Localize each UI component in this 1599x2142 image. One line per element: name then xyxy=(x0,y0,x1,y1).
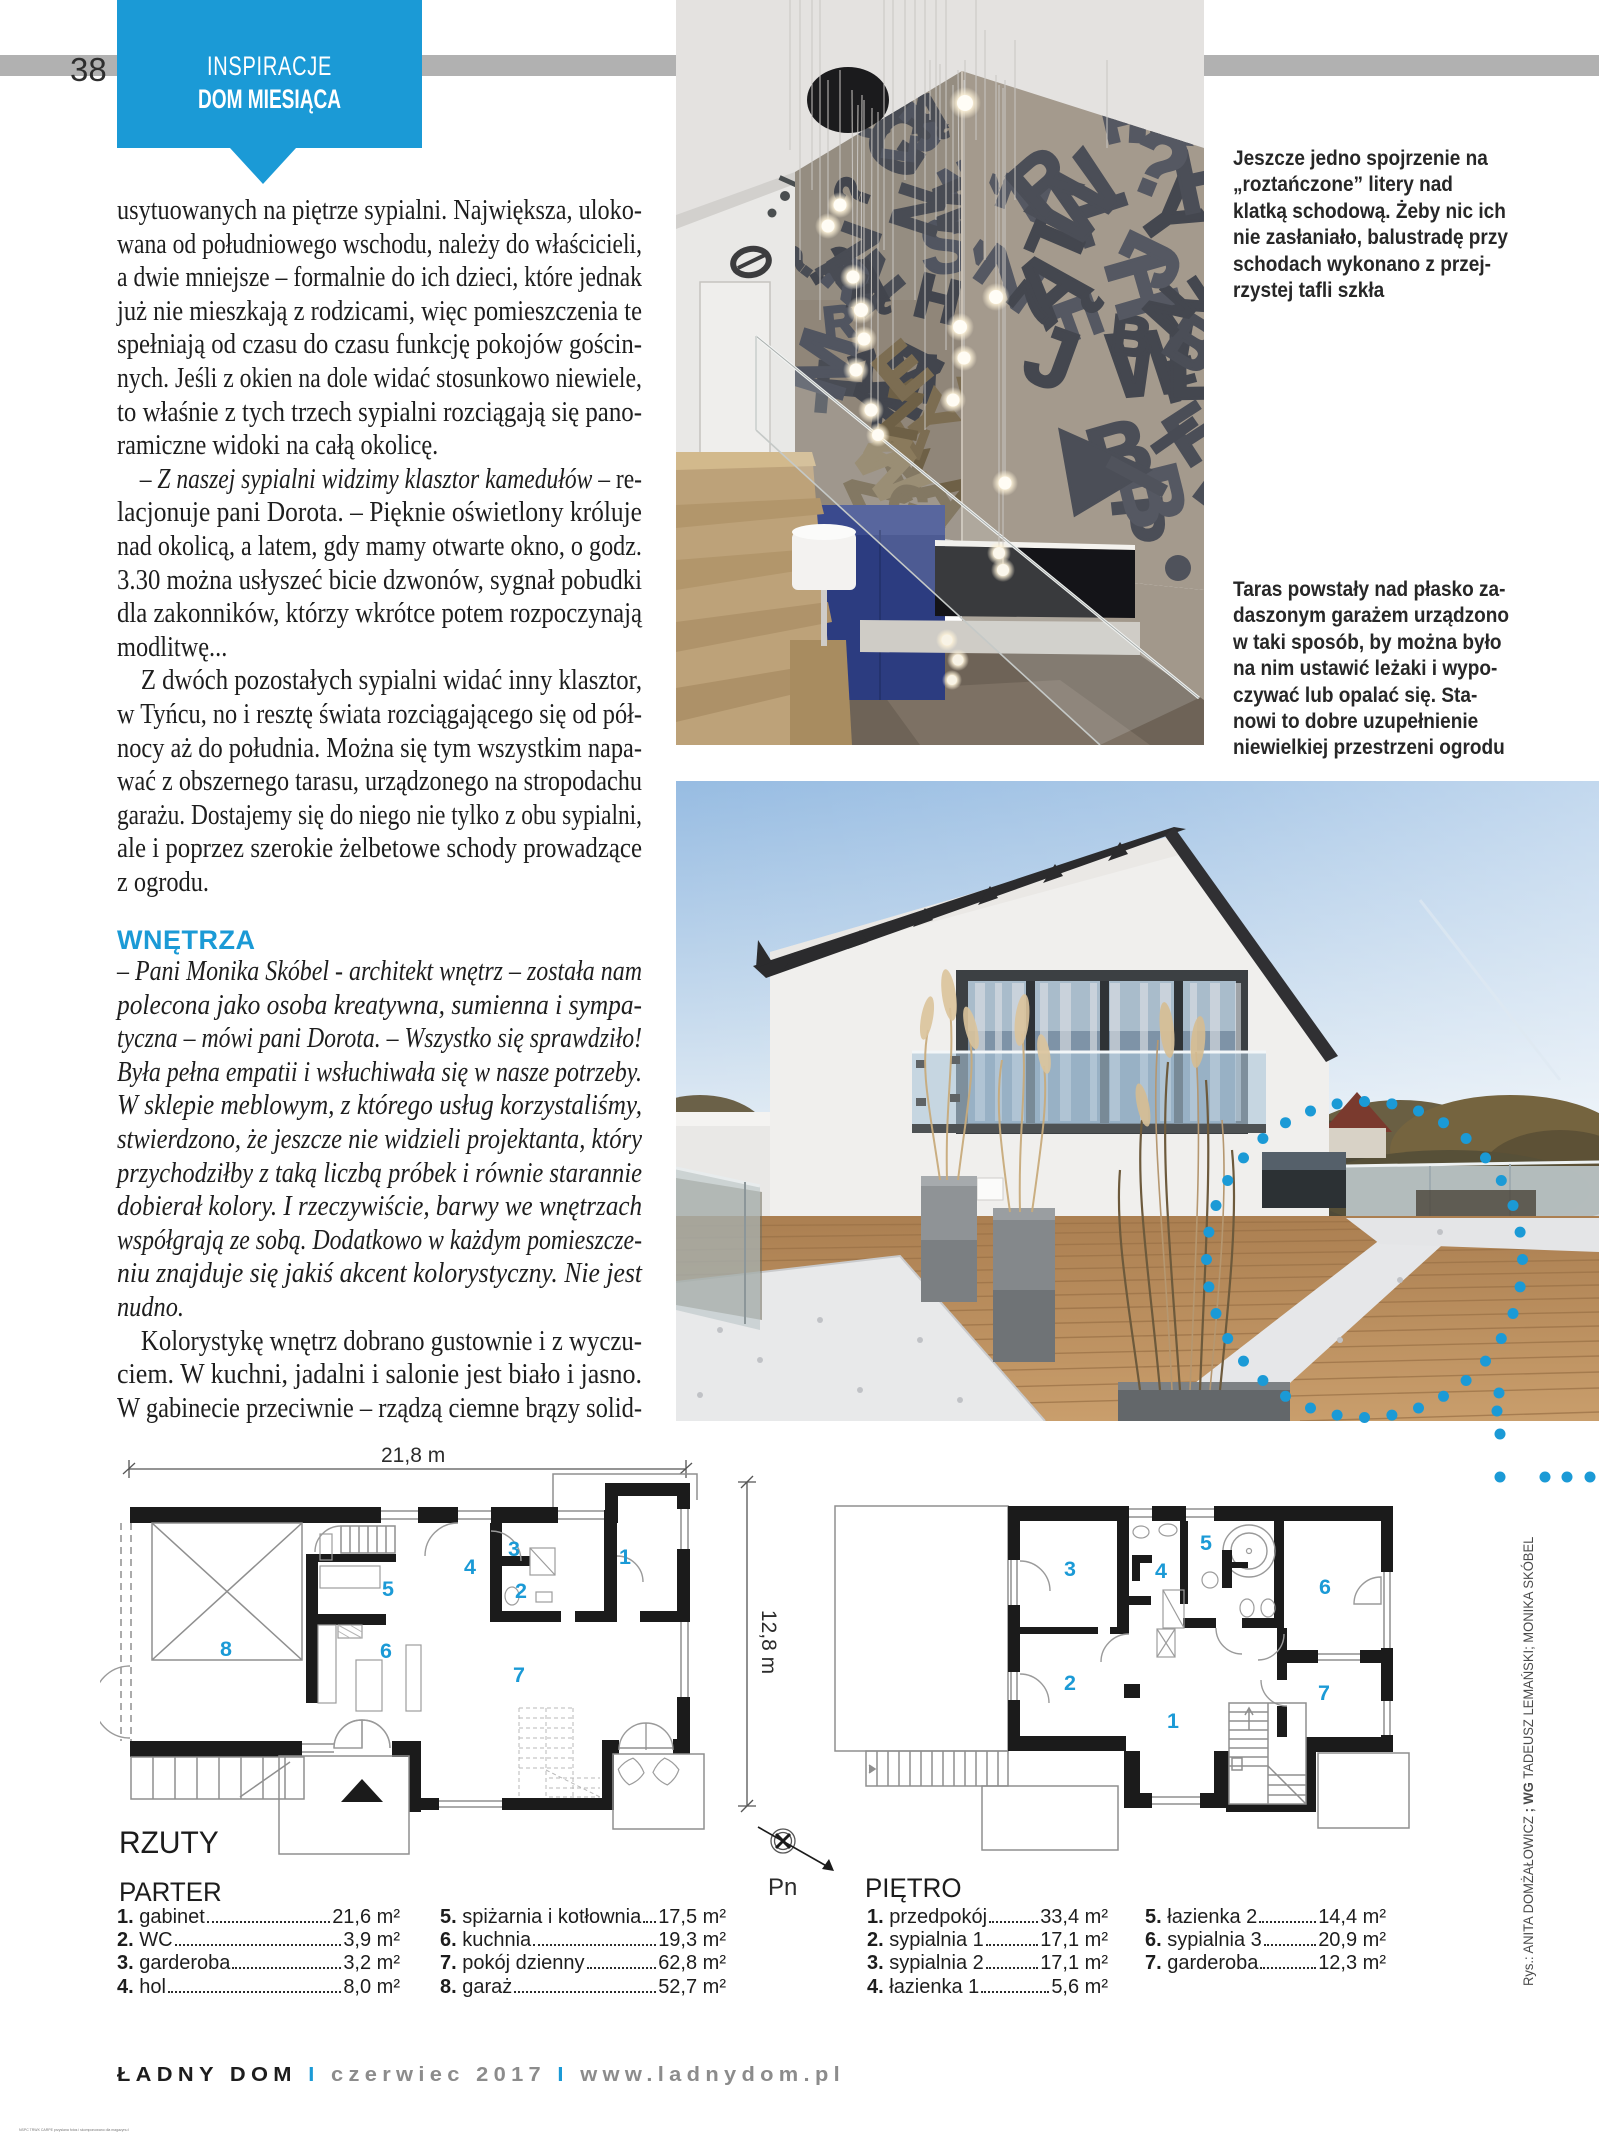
svg-text:6: 6 xyxy=(1319,1575,1331,1599)
svg-text:2: 2 xyxy=(1064,1671,1076,1695)
svg-text:8: 8 xyxy=(220,1637,232,1661)
svg-text:6: 6 xyxy=(380,1639,392,1663)
svg-text:7: 7 xyxy=(1318,1681,1330,1705)
svg-text:12,8 m: 12,8 m xyxy=(757,1610,780,1674)
svg-text:3: 3 xyxy=(508,1537,520,1561)
svg-text:Pn: Pn xyxy=(768,1874,797,1901)
svg-text:7: 7 xyxy=(513,1663,525,1687)
svg-text:4: 4 xyxy=(1155,1559,1167,1583)
svg-text:1: 1 xyxy=(619,1545,631,1569)
svg-text:3: 3 xyxy=(1064,1557,1076,1581)
svg-text:1: 1 xyxy=(1167,1709,1179,1733)
svg-text:21,8 m: 21,8 m xyxy=(381,1444,445,1467)
svg-text:4: 4 xyxy=(464,1555,476,1579)
svg-text:5: 5 xyxy=(382,1577,394,1601)
svg-text:5: 5 xyxy=(1200,1531,1212,1555)
svg-text:2: 2 xyxy=(515,1579,527,1603)
